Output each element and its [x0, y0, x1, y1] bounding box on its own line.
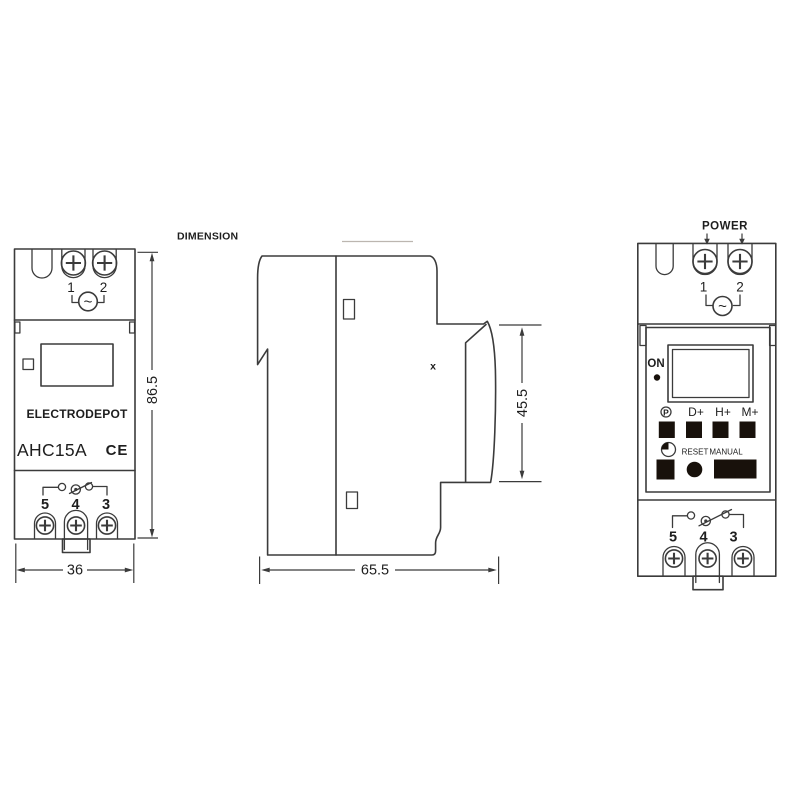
side-body-outline [258, 256, 496, 555]
screw-cross-icon [668, 553, 680, 565]
panel-view: POWER 1 2 ~ ON P D+ H+ M+ [638, 221, 776, 590]
screw-cross-icon [697, 254, 712, 269]
program-button [659, 422, 675, 439]
ac-symbol: ~ [84, 294, 93, 311]
ce-mark: CE [106, 442, 129, 459]
screw-cross-icon [39, 520, 51, 532]
screw-cross-icon [732, 254, 747, 269]
terminal-slot [32, 250, 52, 278]
relay-contact-icon [43, 483, 107, 496]
screw-cross-icon [97, 255, 112, 270]
ac-symbol: ~ [718, 298, 727, 315]
terminal-label-1: 1 [700, 280, 708, 295]
timer-button [657, 460, 675, 480]
diagram-title: DIMENSION [177, 231, 238, 243]
screw-cross-icon [737, 553, 749, 565]
dim-width-value: 36 [67, 563, 83, 579]
latch-slot-lower [347, 492, 358, 509]
dim-height-value: 86.5 [145, 376, 161, 404]
model-label: AHC15A [17, 440, 87, 460]
relay-contact-icon [673, 510, 744, 528]
clip-notch [640, 326, 646, 346]
diagram-canvas: DIMENSION 1 2 ~ ELECTRODEPOT AHC15A CE [0, 0, 800, 800]
led-window [23, 359, 34, 370]
day-button-label: D+ [688, 405, 704, 419]
minute-button [740, 422, 756, 439]
hour-button [713, 422, 729, 439]
clip-notch [15, 322, 20, 333]
screw-cross-icon [101, 520, 113, 532]
day-button [686, 422, 702, 439]
terminal-label-1: 1 [67, 280, 75, 295]
lcd-display-screen [673, 350, 750, 398]
on-label: ON [647, 358, 664, 370]
brand-label: ELECTRODEPOT [26, 407, 128, 421]
display-window [41, 344, 113, 386]
screw-cross-icon [66, 255, 81, 270]
reset-label: RESET [682, 448, 709, 457]
lcd-display-frame [668, 345, 753, 402]
marker-x: x [430, 361, 436, 373]
screw-cross-icon [702, 553, 714, 565]
din-clip-tab [693, 576, 723, 590]
front-height-dimension: 45.5 [499, 325, 542, 482]
minute-button-label: M+ [741, 405, 758, 419]
front-face-edge [466, 325, 486, 482]
clip-notch [130, 322, 135, 333]
manual-label: MANUAL [709, 448, 743, 457]
latch-slot-upper [344, 300, 355, 320]
height-dimension: 86.5 [138, 252, 162, 538]
width-dimension: 36 [16, 544, 134, 584]
program-button-label: P [663, 407, 669, 417]
terminal-label-2: 2 [100, 280, 108, 295]
din-clip-tab [63, 539, 91, 553]
dim-depth-value: 65.5 [361, 563, 389, 579]
side-view: x 65.5 45.5 [258, 242, 542, 585]
power-label: POWER [702, 221, 748, 233]
terminal-slot [656, 244, 673, 274]
on-led-indicator [654, 374, 660, 380]
dimension-diagram: DIMENSION 1 2 ~ ELECTRODEPOT AHC15A CE [0, 0, 800, 800]
front-view: 1 2 ~ ELECTRODEPOT AHC15A CE 5 4 3 [15, 249, 162, 583]
dim-front-height-value: 45.5 [515, 389, 531, 417]
reset-button [687, 462, 703, 478]
terminal-label-5: 5 [41, 497, 49, 513]
terminal-label-3: 3 [729, 530, 737, 546]
hour-button-label: H+ [715, 405, 731, 419]
depth-dimension: 65.5 [260, 557, 499, 585]
clock-icon-wedge [662, 443, 669, 450]
terminal-label-3: 3 [102, 497, 110, 513]
terminal-label-5: 5 [669, 530, 677, 546]
terminal-label-2: 2 [736, 280, 744, 295]
manual-button [714, 460, 757, 479]
screw-cross-icon [70, 520, 82, 532]
